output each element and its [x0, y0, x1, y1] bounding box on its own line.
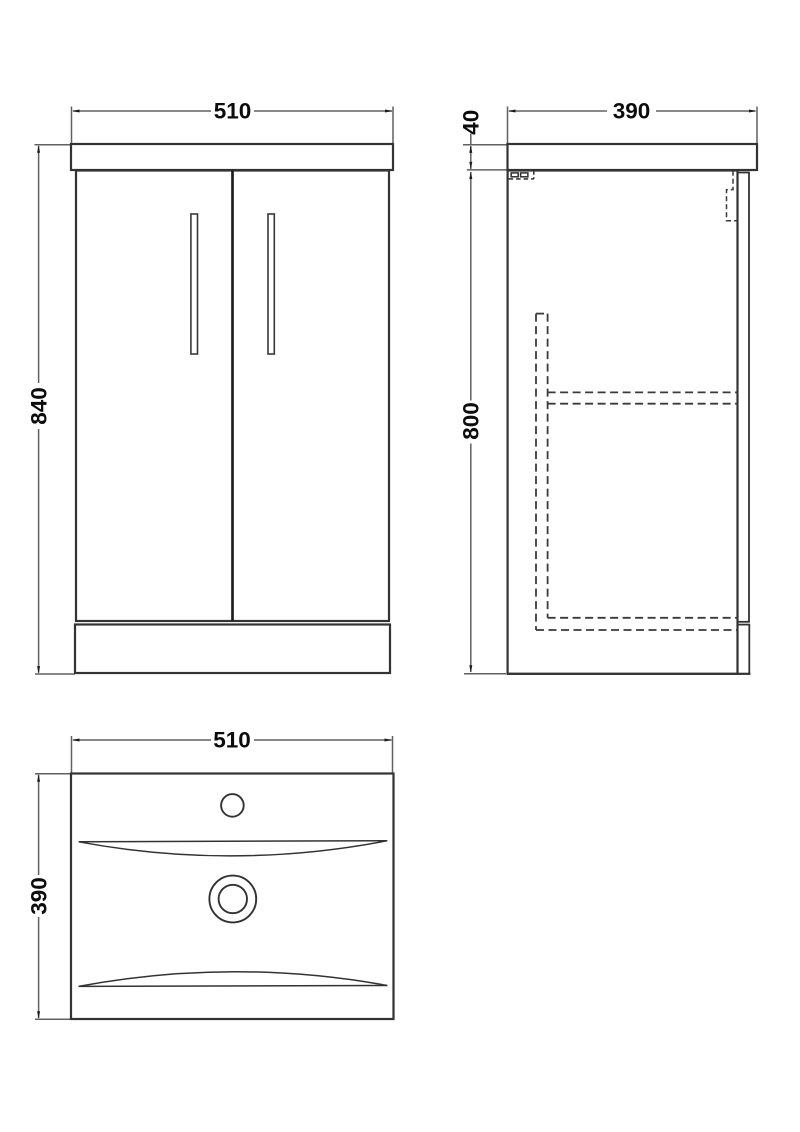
svg-text:800: 800: [459, 402, 484, 440]
svg-text:40: 40: [459, 110, 484, 135]
svg-text:840: 840: [26, 387, 51, 425]
svg-text:510: 510: [213, 728, 251, 753]
svg-text:510: 510: [214, 99, 252, 124]
svg-text:390: 390: [26, 877, 51, 915]
svg-text:390: 390: [613, 99, 651, 124]
